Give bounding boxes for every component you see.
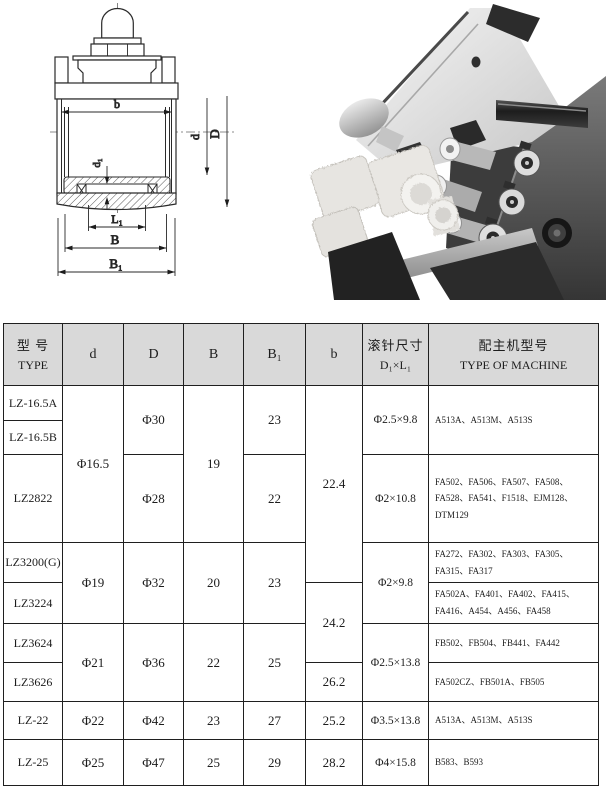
B-cell: 22 bbox=[184, 624, 244, 702]
machine-cell: FA502CZ、FB501A、FB505 bbox=[429, 663, 599, 702]
d-cell: Φ25 bbox=[63, 740, 124, 786]
pin-cell: Φ4×15.8 bbox=[363, 740, 429, 786]
bearing-technical-drawing: b d D d₁ L₁ B bbox=[20, 0, 250, 300]
hex-nut bbox=[91, 44, 144, 56]
d-cell: Φ22 bbox=[63, 702, 124, 740]
machine-cell: FA502A、FA401、FA402、FA415、FA416、A454、A456… bbox=[429, 583, 599, 624]
B1-cell: 29 bbox=[244, 740, 306, 786]
d-cell: Φ19 bbox=[63, 543, 124, 624]
header-row: 型 号 TYPE d D B B₁ b 滚针尺寸 D₁×L₁ 配主机型号 TYP… bbox=[4, 324, 599, 386]
arm-hole bbox=[472, 57, 481, 68]
table-row: LZ-16.5A Φ16.5 Φ30 19 23 22.4 Φ2.5×9.8 A… bbox=[4, 386, 599, 421]
pin-cell: Φ2×9.8 bbox=[363, 543, 429, 624]
header-b: b bbox=[306, 324, 363, 386]
B-cell: 25 bbox=[184, 740, 244, 786]
D-cell: Φ47 bbox=[124, 740, 184, 786]
B1-cell: 25 bbox=[244, 624, 306, 702]
header-machine: 配主机型号 TYPE OF MACHINE bbox=[429, 324, 599, 386]
machine-cell: FB502、FB504、FB441、FA442 bbox=[429, 624, 599, 663]
B-cell: 23 bbox=[184, 702, 244, 740]
B-cell: 19 bbox=[184, 386, 244, 543]
header-d: d bbox=[63, 324, 124, 386]
type-cell: LZ3624 bbox=[4, 624, 63, 663]
type-cell: LZ-16.5A bbox=[4, 386, 63, 421]
d-cell: Φ21 bbox=[63, 624, 124, 702]
type-cell: LZ3626 bbox=[4, 663, 63, 702]
B1-cell: 22 bbox=[244, 455, 306, 543]
dim-D-label: D bbox=[207, 129, 222, 138]
D-cell: Φ32 bbox=[124, 543, 184, 624]
dim-d1-label: d₁ bbox=[91, 158, 103, 168]
dim-B1-label: B₁ bbox=[109, 256, 122, 271]
header-D: D bbox=[124, 324, 184, 386]
bottom-cap bbox=[57, 193, 176, 210]
D-cell: Φ30 bbox=[124, 386, 184, 455]
dim-B-label: B bbox=[111, 232, 120, 247]
left-ear bbox=[55, 57, 68, 83]
type-cell: LZ-25 bbox=[4, 740, 63, 786]
type-cell: LZ2822 bbox=[4, 455, 63, 543]
photo-svg bbox=[300, 0, 606, 300]
table-row: LZ3624 Φ21 Φ36 22 25 Φ2.5×13.8 FB502、FB5… bbox=[4, 624, 599, 663]
spec-table: 型 号 TYPE d D B B₁ b 滚针尺寸 D₁×L₁ 配主机型号 TYP… bbox=[3, 323, 599, 786]
header-machine-cn: 配主机型号 bbox=[429, 336, 598, 357]
machine-cell: A513A、A513M、A513S bbox=[429, 702, 599, 740]
B1-cell: 23 bbox=[244, 543, 306, 624]
type-cell: LZ3200(G) bbox=[4, 543, 63, 583]
drawing-svg: b d D d₁ L₁ B bbox=[20, 0, 250, 300]
b-cell: 22.4 bbox=[306, 386, 363, 583]
b-cell: 28.2 bbox=[306, 740, 363, 786]
pin-cell: Φ2.5×9.8 bbox=[363, 386, 429, 455]
header-B: B bbox=[184, 324, 244, 386]
B1-cell: 27 bbox=[244, 702, 306, 740]
b-cell: 26.2 bbox=[306, 663, 363, 702]
cap-nut bbox=[91, 8, 144, 56]
header-type-en: TYPE bbox=[4, 357, 62, 374]
machine-cell: A513A、A513M、A513S bbox=[429, 386, 599, 455]
header-pin-cn: 滚针尺寸 bbox=[363, 336, 428, 357]
washer bbox=[94, 38, 141, 44]
machine-photo bbox=[300, 0, 606, 300]
type-cell: LZ-16.5B bbox=[4, 421, 63, 455]
right-ear bbox=[162, 57, 175, 83]
header-B1: B₁ bbox=[244, 324, 306, 386]
pin-cell: Φ2×10.8 bbox=[363, 455, 429, 543]
dim-L1-label: L₁ bbox=[111, 212, 123, 226]
header-pin: 滚针尺寸 D₁×L₁ bbox=[363, 324, 429, 386]
type-cell: LZ3224 bbox=[4, 583, 63, 624]
table-row: LZ-25 Φ25 Φ47 25 29 28.2 Φ4×15.8 B583、B5… bbox=[4, 740, 599, 786]
dim-b-label: b bbox=[114, 97, 120, 111]
D-cell: Φ28 bbox=[124, 455, 184, 543]
spec-table-wrap: 型 号 TYPE d D B B₁ b 滚针尺寸 D₁×L₁ 配主机型号 TYP… bbox=[3, 323, 598, 786]
machine-cell: FA272、FA302、FA303、FA305、FA315、FA317 bbox=[429, 543, 599, 583]
header-type-cn: 型 号 bbox=[4, 336, 62, 357]
B1-cell: 23 bbox=[244, 386, 306, 455]
D-cell: Φ42 bbox=[124, 702, 184, 740]
table-row: LZ-22 Φ22 Φ42 23 27 25.2 Φ3.5×13.8 A513A… bbox=[4, 702, 599, 740]
header-machine-en: TYPE OF MACHINE bbox=[429, 357, 598, 374]
d-cell: Φ16.5 bbox=[63, 386, 124, 543]
B-cell: 20 bbox=[184, 543, 244, 624]
type-cell: LZ-22 bbox=[4, 702, 63, 740]
housing-body bbox=[55, 56, 178, 194]
header-pin-en: D₁×L₁ bbox=[363, 357, 428, 374]
machine-cell: FA502、FA506、FA507、FA508、FA528、FA541、F151… bbox=[429, 455, 599, 543]
pin-cell: Φ2.5×13.8 bbox=[363, 624, 429, 702]
table-row: LZ3200(G) Φ19 Φ32 20 23 Φ2×9.8 FA272、FA3… bbox=[4, 543, 599, 583]
plate-knob bbox=[542, 218, 572, 248]
machine-cell: B583、B593 bbox=[429, 740, 599, 786]
dim-d-label: d bbox=[188, 134, 202, 140]
pin-cell: Φ3.5×13.8 bbox=[363, 702, 429, 740]
b-cell: 25.2 bbox=[306, 702, 363, 740]
b-cell: 24.2 bbox=[306, 583, 363, 663]
D-cell: Φ36 bbox=[124, 624, 184, 702]
dim-D: D bbox=[207, 96, 229, 207]
header-type: 型 号 TYPE bbox=[4, 324, 63, 386]
